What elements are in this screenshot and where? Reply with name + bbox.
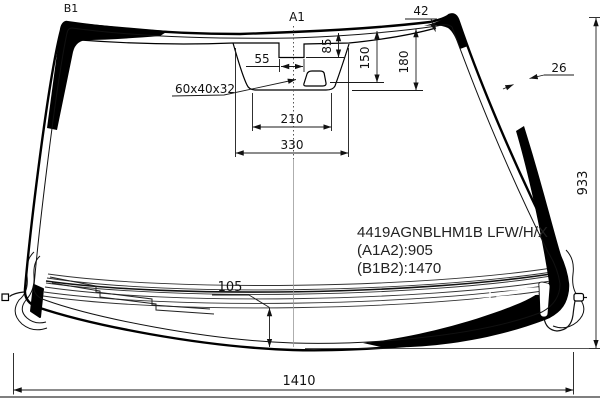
dim-a1a2: (A1A2):905	[357, 242, 433, 259]
left-bus-bar	[31, 285, 43, 317]
mirror-pad	[304, 71, 326, 86]
windshield-drawing-canvas: B1A14285551501802660x40x3221033093310514…	[0, 0, 600, 400]
dim-330: 330	[281, 138, 304, 152]
right-bus-bar-tab	[539, 282, 550, 317]
part-code: 4419AGNBLHM1B LFW/H/X	[357, 224, 548, 241]
dim-55: 55	[254, 52, 269, 66]
b1-marker: B1	[64, 2, 79, 15]
dim-180: 180	[397, 51, 411, 74]
dim-42: 42	[413, 4, 428, 18]
dim-85: 85	[320, 38, 334, 53]
a1-marker: A1	[289, 10, 305, 24]
left-connector-wire	[2, 292, 24, 301]
windshield-diagram: B1A14285551501802660x40x3221033093310514…	[0, 0, 600, 400]
dim-1410: 1410	[282, 374, 315, 389]
dim-60x40x32: 60x40x32	[175, 82, 235, 96]
dim-105: 105	[218, 280, 243, 295]
dim-150: 150	[358, 47, 372, 70]
glass-outer-fill	[25, 14, 568, 350]
dim-210: 210	[281, 112, 304, 126]
dim-26: 26	[551, 61, 566, 75]
dim-933: 933	[576, 171, 591, 196]
glass-outline-group	[2, 14, 587, 350]
dim-b1b2: (B1B2):1470	[357, 260, 441, 277]
